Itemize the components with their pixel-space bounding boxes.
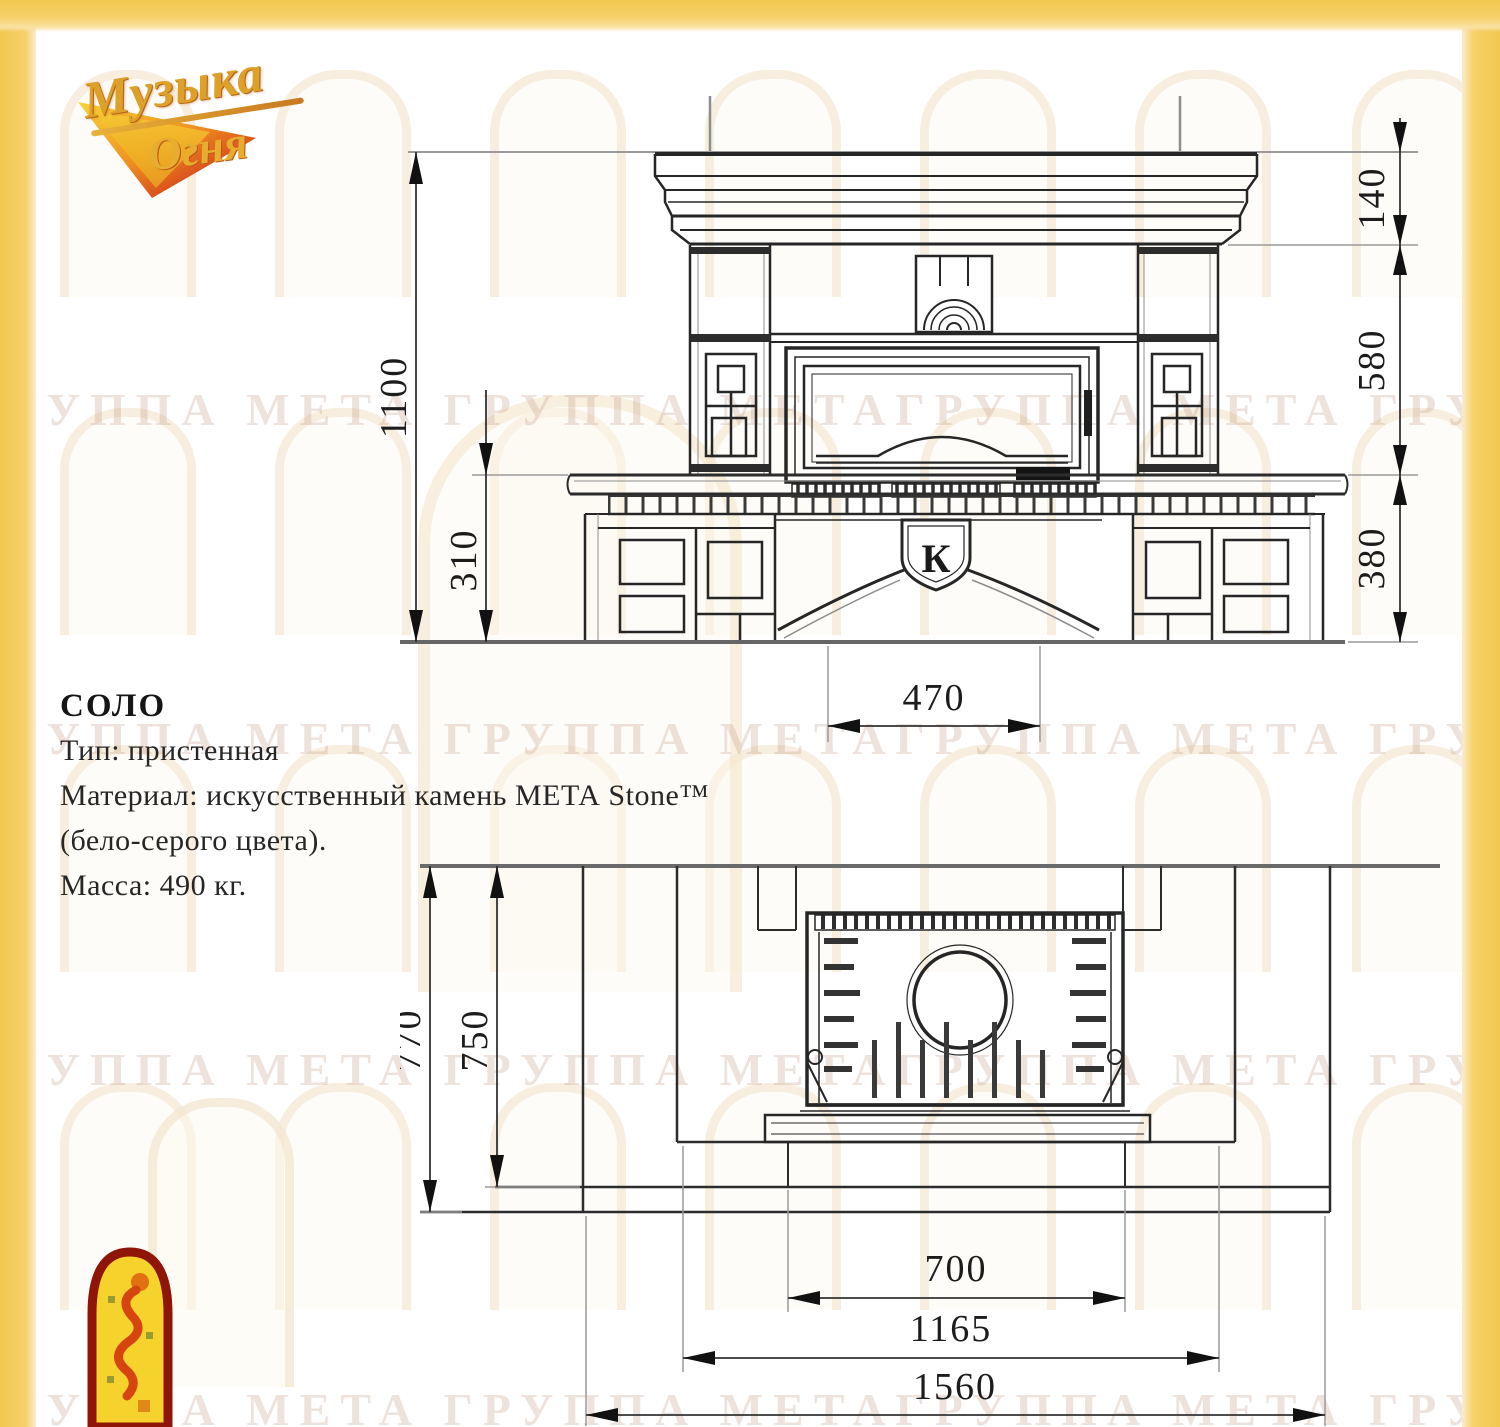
convection-fins [824, 938, 1106, 1072]
frame-top [0, 0, 1500, 32]
dim-770: 770 [400, 866, 462, 1212]
flame-dancer-icon [80, 1236, 180, 1427]
page: ГРУППА МЕТА ГРУППА МЕТАГРУППА МЕТА ГРУПП… [0, 0, 1500, 1427]
spec-material-2: (бело-серого цвета). [60, 818, 709, 863]
svg-text:1560: 1560 [913, 1366, 997, 1408]
spec-mass: Масса: 490 кг. [60, 863, 709, 908]
shield-letter: К [921, 536, 950, 581]
frame-left [0, 0, 36, 1427]
spec-material-1: Материал: искусственный камень МЕТА Ston… [60, 773, 709, 818]
column-stone-pattern [706, 354, 756, 456]
dim-380: 380 [1351, 527, 1393, 590]
grate-bars [872, 1022, 1045, 1098]
frieze [770, 256, 1138, 342]
spec-block: СОЛО Тип: пристенная Материал: искусстве… [60, 684, 709, 908]
flame-guard-curve [816, 437, 1068, 456]
dim-140: 140 [1351, 167, 1393, 230]
model-title: СОЛО [60, 684, 709, 728]
dim-1100: 1100 [380, 152, 423, 642]
frame-right [1462, 0, 1500, 1427]
front-elevation-drawing: К 1100 310 [380, 90, 1440, 770]
svg-text:1165: 1165 [910, 1308, 993, 1350]
insert-facing [765, 1115, 1150, 1142]
watermark-arch [60, 408, 196, 635]
brand-logo: Музыка Огня [60, 40, 330, 225]
spec-type: Тип: пристенная [60, 728, 709, 773]
svg-text:770: 770 [400, 1009, 429, 1072]
watermark-arch [275, 1083, 411, 1310]
svg-text:750: 750 [454, 1009, 496, 1072]
plan-view-drawing: 770 750 700 1165 [400, 850, 1460, 1427]
mantel-shelf [655, 154, 1257, 244]
door-handle [1084, 390, 1092, 436]
base-stone-block [585, 514, 775, 642]
brick-course [608, 496, 1315, 514]
base-apron: К [775, 520, 1102, 638]
dim-750: 750 [454, 866, 580, 1187]
flue-lines [710, 96, 1180, 152]
svg-text:310: 310 [443, 529, 485, 592]
portal-column [690, 245, 770, 475]
dim-700: 700 [788, 1190, 1125, 1312]
svg-text:1100: 1100 [380, 356, 415, 439]
svg-text:700: 700 [925, 1248, 988, 1290]
arch-emblem [80, 1236, 180, 1427]
insert-top-view [765, 913, 1150, 1142]
svg-text:470: 470 [903, 677, 966, 719]
dim-580: 580 [1351, 329, 1393, 392]
base-stone-pattern [620, 528, 775, 642]
dim-310: 310 [443, 390, 568, 642]
dim-470: 470 [828, 646, 1040, 742]
